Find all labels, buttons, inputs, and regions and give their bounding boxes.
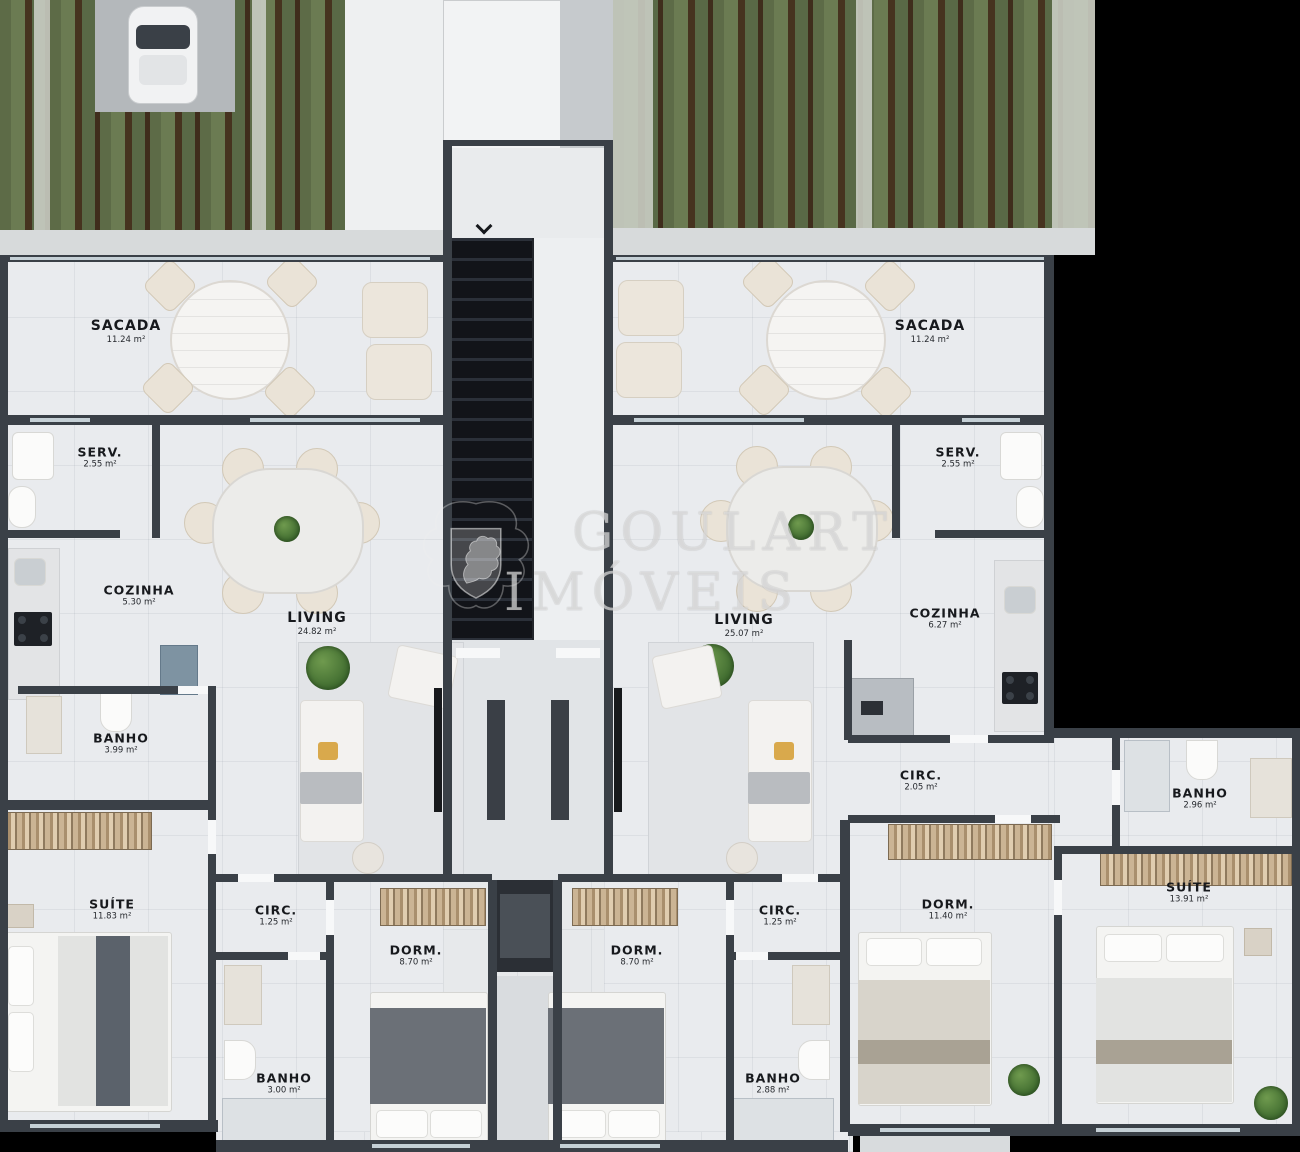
hall-floor <box>452 640 604 880</box>
laundry-tub <box>1000 432 1042 480</box>
room-label-sacada-right: SACADA11.24 m² <box>895 319 965 345</box>
room-label-dorm-left: DORM.8.70 m² <box>390 944 443 969</box>
staircase <box>452 238 532 640</box>
nightstand <box>1244 928 1272 956</box>
door <box>238 874 274 882</box>
bathroom-vanity <box>1250 758 1292 818</box>
bed-pillow <box>926 938 982 966</box>
wall <box>216 1140 848 1152</box>
car-windshield <box>136 25 190 49</box>
door <box>950 735 988 743</box>
room-label-dorm-right: DORM.8.70 m² <box>611 944 664 969</box>
wall <box>0 800 216 810</box>
wardrobe <box>380 888 486 926</box>
sofa-cushion <box>318 742 338 760</box>
room-label-cozinha-right: COZINHA6.27 m² <box>909 607 980 632</box>
window <box>962 418 1020 422</box>
shower <box>222 1098 328 1146</box>
room-label-dorm-right-2: DORM.11.40 m² <box>922 898 975 923</box>
living-plant <box>306 646 350 690</box>
elevator-shaft <box>488 880 562 972</box>
sofa <box>300 700 364 842</box>
garden-path <box>252 0 266 230</box>
room-label-banho-right-wing: BANHO2.96 m² <box>1172 787 1228 812</box>
bed-blanket <box>548 1008 664 1104</box>
roof-edge-left <box>0 230 445 255</box>
window <box>560 1144 660 1148</box>
balcony-armchair <box>618 280 684 336</box>
door <box>178 686 208 694</box>
shower <box>1124 740 1170 812</box>
wall <box>443 140 613 146</box>
car-top-view <box>128 6 198 104</box>
core-top-white <box>443 0 562 150</box>
laundry-tub <box>12 432 54 480</box>
bathroom-vanity <box>224 965 262 1025</box>
nightstand <box>4 904 34 928</box>
window <box>30 1124 160 1128</box>
bed-pillow <box>1166 934 1224 962</box>
duct-left <box>487 700 505 820</box>
sofa <box>748 700 812 842</box>
core-bottom-shaft <box>497 976 553 1152</box>
wardrobe <box>2 812 152 850</box>
stair-side-corridor <box>532 238 606 640</box>
bed-throw <box>1096 1040 1232 1064</box>
wardrobe <box>888 824 1052 860</box>
bed-pillow <box>376 1110 428 1138</box>
room-label-circ-right: CIRC.2.05 m² <box>900 769 942 794</box>
room-label-banho-left: BANHO3.99 m² <box>93 732 149 757</box>
balcony-railing-glass <box>10 257 430 260</box>
garden-path <box>34 0 50 230</box>
stair-landing-top <box>452 148 604 238</box>
wall <box>604 140 613 880</box>
core-top-block <box>345 0 452 232</box>
door <box>736 952 768 960</box>
bed-pillow <box>8 946 34 1006</box>
window <box>372 1144 470 1148</box>
garden-path <box>1052 0 1095 228</box>
tv-panel <box>434 688 442 812</box>
car-roof <box>139 55 187 85</box>
sofa-throw <box>748 772 810 804</box>
wardrobe <box>572 888 678 926</box>
window <box>880 1128 990 1132</box>
balcony-ledge-right <box>860 1136 1010 1152</box>
toilet <box>224 1040 256 1080</box>
kitchen-island <box>846 678 914 740</box>
tv-panel <box>614 688 622 812</box>
room-label-living-right: LIVING25.07 m² <box>714 613 773 639</box>
roof-edge-right <box>613 228 1095 255</box>
wall <box>18 686 178 694</box>
shower <box>732 1098 834 1146</box>
floor-plan: GOULART IMÓVEIS SACADA11.24 m² SERV.2.55… <box>0 0 1300 1152</box>
garden-path <box>856 0 872 228</box>
table-plant <box>788 514 814 540</box>
sliding-door-glass <box>634 418 804 422</box>
room-label-banho-right-2: BANHO2.88 m² <box>745 1072 801 1097</box>
balcony-railing-glass <box>616 257 1044 260</box>
wall <box>935 530 1052 538</box>
room-label-living-left: LIVING24.82 m² <box>287 611 346 637</box>
room-label-suite-right: SUÍTE13.91 m² <box>1166 881 1212 906</box>
wall <box>152 425 160 538</box>
service-sink <box>8 486 36 528</box>
cooktop <box>14 612 52 646</box>
room-label-cozinha-left: COZINHA5.30 m² <box>103 584 174 609</box>
bed-blanket <box>370 1008 486 1104</box>
bathroom-vanity <box>26 696 62 754</box>
door <box>288 952 320 960</box>
room-label-circ-right-2: CIRC.1.25 m² <box>759 904 801 929</box>
hall-door-right <box>556 648 600 658</box>
room-label-banho-left-2: BANHO3.00 m² <box>256 1072 312 1097</box>
room-label-serv-left: SERV.2.55 m² <box>78 446 123 471</box>
door <box>726 900 734 935</box>
wall <box>1044 255 1054 735</box>
toilet <box>100 692 132 732</box>
door <box>208 820 216 854</box>
room-label-serv-right: SERV.2.55 m² <box>936 446 981 471</box>
wall <box>208 686 216 1130</box>
room-label-sacada-left: SACADA11.24 m² <box>91 319 161 345</box>
pergola-garden-right <box>613 0 1095 228</box>
sofa-cushion <box>774 742 794 760</box>
garden-path <box>613 0 653 228</box>
door <box>326 900 334 935</box>
bed-pillow <box>430 1110 482 1138</box>
wall <box>0 530 120 538</box>
room-label-suite-left: SUÍTE11.83 m² <box>89 898 135 923</box>
bed-throw <box>96 936 130 1106</box>
wall <box>0 255 8 1132</box>
sliding-door-glass <box>250 418 420 422</box>
bedroom-plant <box>1254 1086 1288 1120</box>
bed-throw <box>858 1040 990 1064</box>
duct-right <box>551 700 569 820</box>
bedroom-plant <box>1008 1064 1040 1096</box>
kitchen-sink <box>14 558 46 586</box>
toilet <box>798 1040 830 1080</box>
bed-pillow <box>866 938 922 966</box>
table-plant <box>274 516 300 542</box>
room-label-circ-left: CIRC.1.25 m² <box>255 904 297 929</box>
bathroom-vanity <box>792 965 830 1025</box>
wall <box>553 880 562 1152</box>
side-table <box>352 842 384 874</box>
side-table <box>726 842 758 874</box>
service-sink <box>1016 486 1044 528</box>
wall <box>1054 846 1300 854</box>
door <box>1054 880 1062 915</box>
bed-pillow <box>608 1110 660 1138</box>
kitchen-sink <box>1004 586 1036 614</box>
wall <box>840 820 850 1132</box>
window <box>1096 1128 1240 1132</box>
toilet <box>1186 740 1218 780</box>
wall <box>844 640 852 740</box>
wall <box>1054 728 1300 738</box>
door <box>782 874 818 882</box>
door <box>1112 770 1120 805</box>
sofa-throw <box>300 772 362 804</box>
bed-pillow <box>1104 934 1162 962</box>
hall-door-left <box>456 648 500 658</box>
bed-pillow <box>8 1012 34 1072</box>
wall <box>443 140 452 880</box>
window <box>30 418 90 422</box>
door <box>995 815 1031 823</box>
balcony-armchair <box>366 344 432 400</box>
cooktop <box>1002 672 1038 704</box>
balcony-armchair <box>616 342 682 398</box>
wall <box>892 425 900 538</box>
wall <box>488 880 497 1152</box>
balcony-armchair <box>362 282 428 338</box>
wall <box>1292 728 1300 1136</box>
